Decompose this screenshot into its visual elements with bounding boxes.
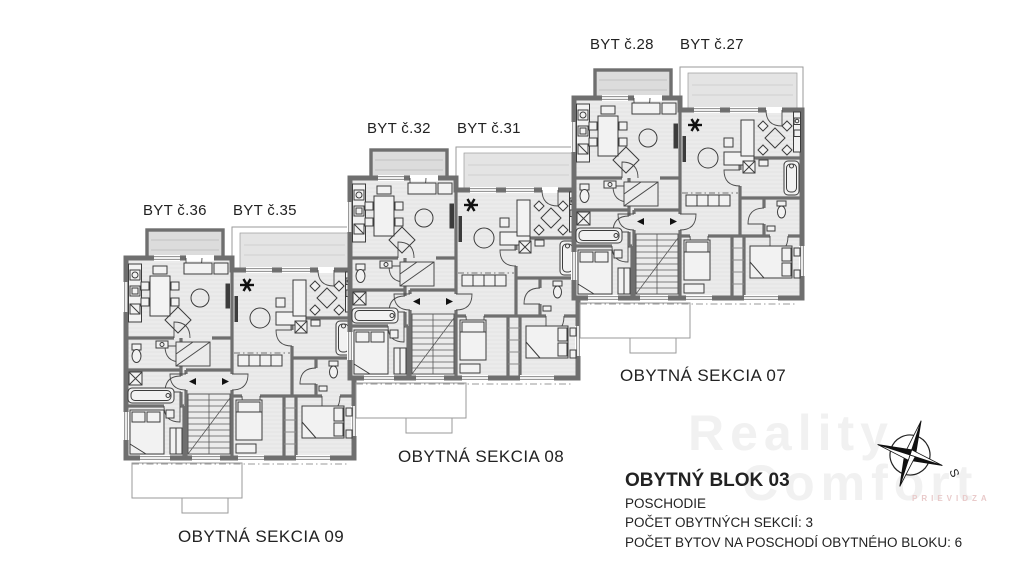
compass-rose-icon: S	[856, 398, 976, 503]
floor-plan-section-07	[571, 67, 805, 353]
section-label-08: OBYTNÁ SEKCIA 08	[398, 447, 564, 467]
apartment-label-28: BYT č.28	[590, 36, 654, 53]
section-label-09: OBYTNÁ SEKCIA 09	[178, 527, 344, 547]
block-title: OBYTNÝ BLOK 03	[625, 470, 790, 492]
apartment-label-32: BYT č.32	[367, 120, 431, 137]
floorplan-sheet: Reality Comfort PRIEVIDZA	[0, 0, 1011, 570]
apartment-label-35: BYT č.35	[233, 202, 297, 219]
floor-plan-section-09	[123, 227, 357, 513]
apartment-label-27: BYT č.27	[680, 36, 744, 53]
apartment-label-36: BYT č.36	[143, 202, 207, 219]
floor-plan-section-08	[347, 147, 581, 433]
compass-south-label: S	[946, 467, 962, 480]
section-label-07: OBYTNÁ SEKCIA 07	[620, 366, 786, 386]
apartment-label-31: BYT č.31	[457, 120, 521, 137]
block-sections-count-line: POČET OBYTNÝCH SEKCIÍ: 3	[625, 515, 813, 530]
block-floor-line: POSCHODIE	[625, 496, 706, 511]
block-apartments-count-line: POČET BYTOV NA POSCHODÍ OBYTNÉHO BLOKU: …	[625, 535, 962, 550]
